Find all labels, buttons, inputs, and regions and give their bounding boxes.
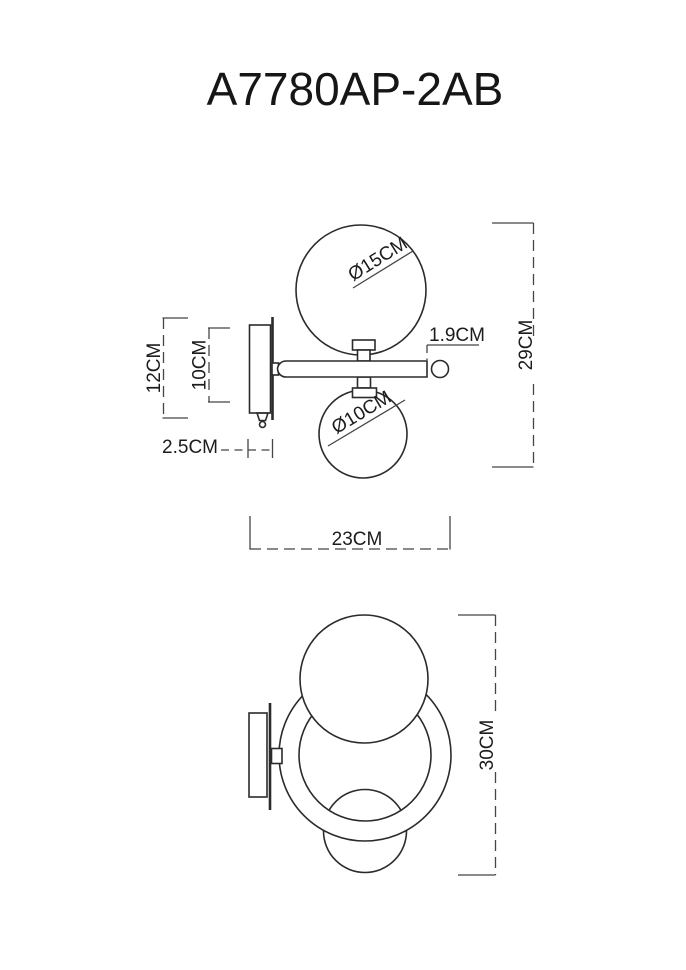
technical-drawing: A7780AP-2AB 12CM bbox=[0, 0, 686, 970]
ring-wall-connector bbox=[272, 749, 283, 764]
drawing-page: A7780AP-2AB 12CM bbox=[0, 0, 686, 970]
arm-tube bbox=[278, 361, 428, 377]
dimension-backplate-depth: 2.5CM bbox=[162, 437, 275, 458]
dimension-arm-tube-diameter: 1.9CM bbox=[427, 325, 485, 360]
dimension-label-12cm: 12CM bbox=[144, 343, 165, 394]
dimension-overall-height-side: 29CM bbox=[492, 223, 537, 467]
dimension-label-30cm: 30CM bbox=[477, 720, 498, 771]
upper-socket-neck bbox=[358, 350, 371, 361]
dimension-wall-mount-height: 12CM bbox=[144, 318, 188, 418]
upper-globe-front bbox=[300, 615, 428, 743]
arm-end-sphere bbox=[432, 361, 449, 378]
dimension-label-1-9cm: 1.9CM bbox=[429, 325, 485, 346]
backplate-side bbox=[250, 325, 271, 413]
dimension-label-29cm: 29CM bbox=[516, 320, 537, 371]
dimension-label-2-5cm: 2.5CM bbox=[162, 437, 218, 458]
upper-socket-cap bbox=[353, 340, 376, 350]
switch-knob bbox=[257, 413, 268, 421]
page-title-model-number: A7780AP-2AB bbox=[207, 63, 504, 115]
front-view: 30CM bbox=[249, 615, 498, 875]
dimension-overall-height-front: 30CM bbox=[458, 615, 498, 875]
backplate-front bbox=[249, 713, 267, 797]
dimension-backplate-height: 10CM bbox=[190, 328, 231, 402]
dimension-label-23cm: 23CM bbox=[332, 529, 383, 550]
switch-pull-loop bbox=[260, 422, 266, 428]
lower-socket-neck bbox=[358, 377, 371, 388]
side-view: 12CM 10CM 2.5CM 23CM 1.9CM bbox=[144, 223, 537, 550]
dimension-overall-projection: 23CM bbox=[250, 516, 450, 550]
dimension-label-10cm: 10CM bbox=[190, 340, 211, 391]
